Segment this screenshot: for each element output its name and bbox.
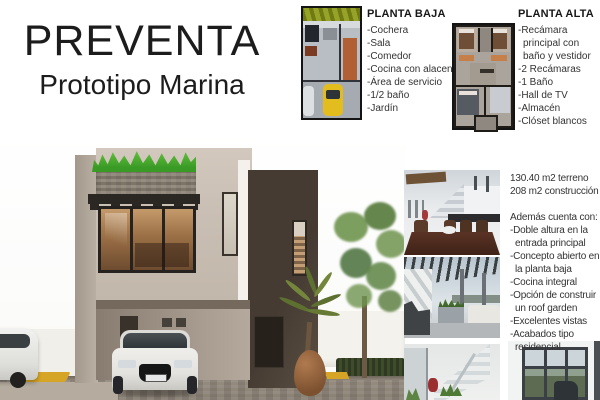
photo-window-transom: [525, 366, 585, 369]
photo-dining-flowers-red: [422, 210, 428, 220]
carport-small-window: [162, 318, 172, 327]
photo-dining-pendant: [486, 176, 489, 192]
neighbour-car-window: [0, 334, 30, 348]
list-item: -Doble altura en la entrada principal: [510, 224, 600, 250]
tree-foliage: [334, 212, 368, 242]
plan-alta-escalera: [474, 115, 498, 132]
carport-ceiling-shadow: [96, 300, 250, 309]
list-item: 208 m2 construcción: [510, 185, 600, 198]
window-reflection: [105, 213, 127, 267]
photo-window-chair: [554, 381, 578, 400]
plan-baja-wall: [339, 24, 341, 80]
plan-alta-hall-tv: [470, 63, 496, 85]
house-render-image: [0, 128, 405, 400]
photo-terrace-planter: [438, 307, 464, 323]
plan-alta-pillow2: [492, 29, 507, 33]
car-wheel-left: [113, 376, 123, 394]
plan-alta-tv: [480, 69, 494, 73]
list-item: -Concepto abierto en la planta baja: [510, 250, 600, 276]
list-item: -1/2 baño: [367, 89, 459, 102]
list-item: -Recámara principal con baño y vestidor: [518, 24, 600, 63]
plan-baja-yellow-car: [323, 84, 343, 116]
plan-alta-rug2: [491, 55, 507, 61]
list-item: -1 Baño: [518, 76, 600, 89]
car-windshield: [123, 333, 187, 349]
photo-dining-chair: [414, 220, 428, 234]
details-features-list: -Doble altura en la entrada principal-Co…: [510, 224, 600, 354]
photo-roof-terrace: [404, 257, 500, 338]
tree-foliage: [346, 284, 372, 308]
headline-block: PREVENTA Prototipo Marina: [8, 20, 276, 99]
photo-dining-kitchen-cabinets: [464, 186, 500, 216]
list-item: -Opción de construir un roof garden: [510, 289, 600, 315]
list-item: -Almacén: [518, 102, 600, 115]
planta-baja-floorplan-image: [301, 6, 362, 120]
tree-foliage: [376, 230, 406, 258]
planta-baja-list: -Cochera-Sala-Comedor-Cocina con alacena…: [367, 24, 459, 115]
blind-window-top-pane: [294, 222, 305, 236]
details-section: 130.40 m2 terreno208 m2 construcción Ade…: [510, 172, 600, 354]
page-subtitle: Prototipo Marina: [8, 70, 276, 99]
car-headlight-left: [118, 360, 136, 368]
details-features-title: Además cuenta con:: [510, 211, 600, 224]
flyer-canvas: PREVENTA Prototipo Marina PLANTA BAJA -C…: [0, 0, 600, 400]
list-item: -2 Recámaras: [518, 63, 600, 76]
plan-alta-bano-central: [478, 28, 493, 52]
plan-alta-pillow1: [459, 29, 474, 33]
facade-left-face: [75, 155, 98, 383]
photo-dining-table: [404, 232, 500, 255]
planta-baja-section: PLANTA BAJA -Cochera-Sala-Comedor-Cocina…: [367, 8, 459, 115]
photo-stairs-red-accent: [428, 378, 438, 392]
list-item: -Cocina integral: [510, 276, 600, 289]
plan-baja-sala: [323, 28, 337, 40]
terracotta-pot: [294, 350, 326, 396]
window-interior-shadow: [135, 243, 189, 267]
plan-baja-cocina: [305, 46, 317, 56]
list-item: -Jardín: [367, 102, 459, 115]
list-item: -Clóset blancos: [518, 115, 600, 128]
photo-dining-pendant: [474, 176, 477, 190]
plan-baja-car-windshield: [326, 90, 340, 99]
planta-alta-title: PLANTA ALTA: [518, 8, 600, 20]
plan-baja-garden-strip: [303, 8, 360, 21]
plan-baja-dining: [305, 25, 319, 42]
car-headlight-right: [174, 360, 192, 368]
car-plate: [145, 374, 167, 382]
list-item: -Excelentes vistas: [510, 315, 600, 328]
photo-dining-counter: [448, 214, 500, 222]
carport-small-window: [176, 318, 186, 327]
tree-trunk: [362, 296, 367, 378]
tree-foliage: [366, 262, 396, 290]
list-item: -Cochera: [367, 24, 459, 37]
page-title: PREVENTA: [8, 20, 276, 63]
list-item: -Hall de TV: [518, 89, 600, 102]
details-areas: 130.40 m2 terreno208 m2 construcción: [510, 172, 600, 198]
plan-alta-pillow3: [459, 91, 477, 95]
photo-dining-room: [404, 170, 500, 255]
photo-dining-flower-vase: [442, 226, 456, 234]
planta-alta-list: -Recámara principal con baño y vestidor-…: [518, 24, 600, 128]
list-item: -Área de servicio: [367, 76, 459, 89]
list-item: -Acabados tipo residencial: [510, 328, 600, 354]
photo-stairs: [404, 344, 500, 400]
tree-foliage: [364, 202, 396, 230]
main-window: [98, 206, 196, 273]
white-car: [112, 330, 198, 396]
neighbour-car-wheel: [10, 372, 26, 388]
tree-foliage: [378, 290, 402, 312]
narrow-window-beige: [222, 192, 238, 256]
photo-window-mullion: [544, 350, 547, 400]
pergola-beam: [88, 194, 200, 204]
spacer: [510, 198, 600, 211]
plan-alta-rug1: [459, 55, 474, 61]
window-mullion: [130, 209, 133, 270]
tree: [330, 198, 405, 383]
plan-alta-bano2: [490, 87, 510, 113]
plan-alta-wall: [484, 85, 486, 117]
list-item: 130.40 m2 terreno: [510, 172, 600, 185]
list-item: -Cocina con alacena: [367, 63, 459, 76]
planta-baja-title: PLANTA BAJA: [367, 8, 459, 20]
planta-alta-section: PLANTA ALTA -Recámara principal con baño…: [518, 8, 600, 128]
plan-baja-white-car: [303, 86, 314, 116]
plan-baja-alacena: [343, 38, 357, 80]
car-wheel-right: [187, 376, 197, 394]
planta-alta-floorplan-image: [452, 23, 515, 130]
list-item: -Sala: [367, 37, 459, 50]
list-item: -Comedor: [367, 50, 459, 63]
